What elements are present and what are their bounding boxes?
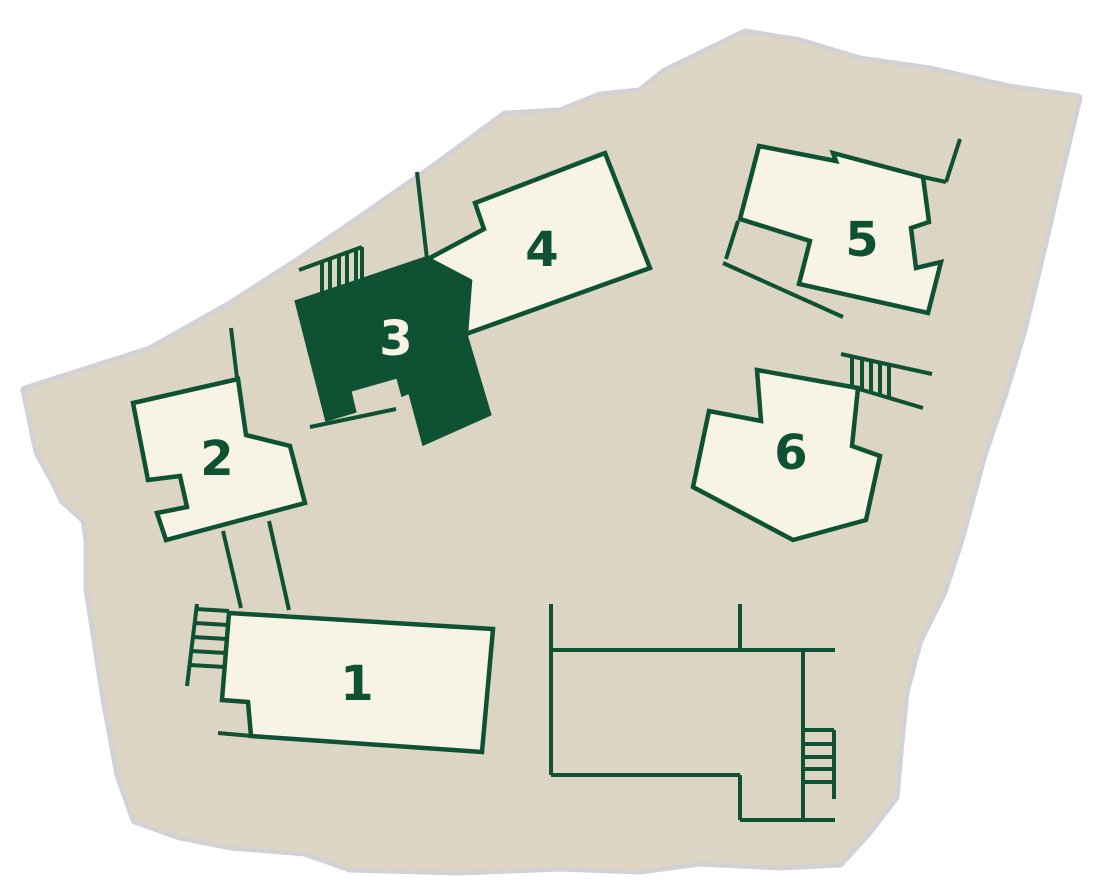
stairs-building-1-line — [195, 623, 228, 625]
building-1[interactable] — [222, 613, 493, 752]
site-map: 123456 — [0, 0, 1110, 896]
stairs-building-1-line — [191, 651, 226, 653]
stairs-building-1-line — [196, 609, 229, 611]
site-map-page: 123456 — [0, 0, 1110, 896]
stairs-building-1-line — [193, 637, 227, 639]
stairs-building-1-line — [190, 665, 225, 667]
